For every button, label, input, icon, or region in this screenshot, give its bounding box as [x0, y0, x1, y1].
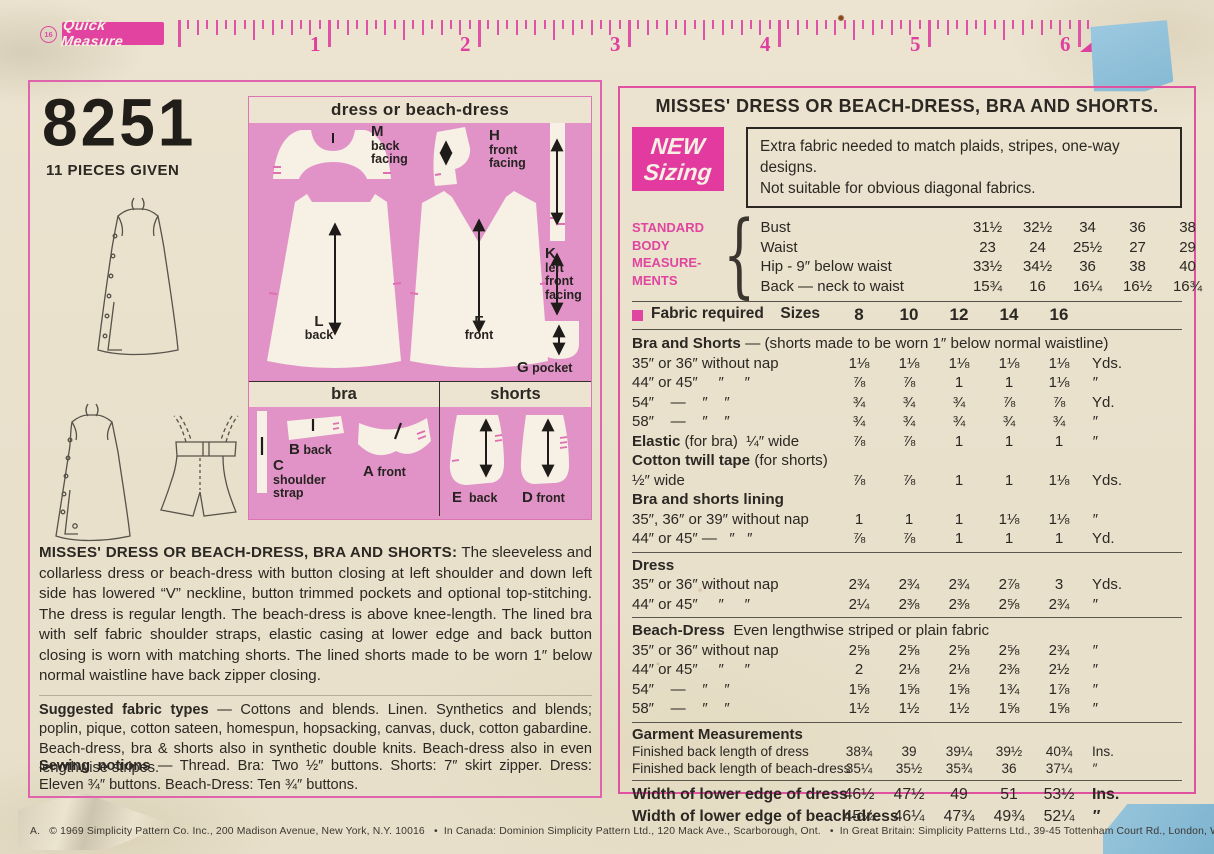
ruler-tick — [441, 20, 443, 35]
size-header-cell: 12 — [934, 305, 984, 325]
value-cell: 15¾ — [963, 277, 1013, 297]
table-row: 44″ or 45″ ″ ″2¼2⅜2⅜2⅝2¾″ — [632, 595, 1182, 615]
table-row: ½″ wide⅞⅞111⅛Yds. — [632, 471, 1182, 491]
value-cell: 52¼ — [1034, 806, 1084, 828]
value-cell: 1 — [884, 510, 934, 530]
value-cell: ¾ — [884, 393, 934, 413]
value-cell: 38 — [1163, 218, 1213, 238]
section-heading-bold: Beach-Dress — [632, 622, 725, 639]
cutting-diagram: dress or beach-dress — [248, 96, 592, 520]
value-cell: 2⅝ — [934, 641, 984, 661]
row-label: 54″ — ″ ″ — [632, 680, 834, 700]
value-cell: 3 — [1034, 575, 1084, 595]
row-label: 35″ or 36″ without nap — [632, 354, 834, 374]
value-cell: 2⅞ — [984, 575, 1034, 595]
ruler-number: 1 — [310, 32, 321, 57]
value-cell: 46½ — [834, 784, 884, 806]
ruler-tick — [731, 20, 733, 29]
unit-cell: ″ — [1084, 760, 1132, 777]
sewing-notions-title: Sewing notions — [39, 758, 150, 774]
ruler-tick — [337, 20, 339, 29]
ruler-tick — [534, 20, 536, 35]
ruler-tick — [919, 20, 921, 29]
row-label: 54″ — ″ ″ — [632, 393, 834, 413]
value-cell: 16½ — [1113, 277, 1163, 297]
value-cell: 1⅝ — [934, 680, 984, 700]
value-cell: ⅞ — [834, 529, 884, 549]
brace-glyph: { — [723, 215, 755, 296]
value-cell: ¾ — [834, 393, 884, 413]
value-cell: ⅞ — [834, 373, 884, 393]
ruler-tick — [853, 20, 855, 40]
table-row: 44″ or 45″ ″ ″22⅛2⅛2⅜2½″ — [632, 660, 1182, 680]
beach-dress-sketch — [56, 404, 130, 541]
ruler-tick — [197, 20, 199, 35]
table-row: Finished back length of beach-dress35¼35… — [632, 760, 1182, 777]
ruler-tick — [1003, 20, 1005, 40]
ruler-tick — [178, 20, 181, 47]
ruler-tick — [797, 20, 799, 35]
value-cell: ⅞ — [984, 393, 1034, 413]
piece-label-g: G pocket — [517, 361, 572, 376]
ruler-tick — [928, 20, 931, 47]
fabric-required-label-cell: Fabric required Sizes — [632, 305, 834, 325]
value-cell: 49¾ — [984, 806, 1034, 828]
ruler-tick — [647, 20, 649, 35]
value-cell: ⅞ — [1034, 393, 1084, 413]
size-header-cell: 16 — [1034, 305, 1084, 325]
ruler-tick — [834, 20, 836, 35]
value-cell: 1 — [1034, 432, 1084, 452]
ruler-tick — [947, 20, 949, 35]
value-cell: 2¾ — [884, 575, 934, 595]
ruler-number: 3 — [610, 32, 621, 57]
row-label: 35″, 36″ or 39″ without nap — [632, 510, 834, 530]
row-label: Waist — [761, 238, 963, 258]
ruler-tick — [994, 20, 996, 29]
left-panel: 8251 11 PIECES GIVEN — [28, 80, 602, 798]
ruler-tick — [553, 20, 555, 40]
ruler-tick — [1087, 20, 1089, 29]
value-cell: 2⅝ — [834, 641, 884, 661]
value-cell: 38¾ — [834, 743, 884, 760]
unit-cell: Ins. — [1084, 743, 1132, 760]
value-cell: 35¾ — [934, 760, 984, 777]
value-cell: ¾ — [934, 393, 984, 413]
sewing-notions: Sewing notions — Thread. Bra: Two ½″ but… — [39, 757, 592, 796]
value-cell: ¾ — [1034, 412, 1084, 432]
value-cell: 39 — [884, 743, 934, 760]
table-row: Elastic (for bra) ¼″ wide⅞⅞111″ — [632, 432, 1182, 452]
ruler-tick — [872, 20, 874, 35]
value-cell: 53½ — [1034, 784, 1084, 806]
ruler-tick — [300, 20, 302, 29]
value-cell: 1 — [834, 510, 884, 530]
value-cell: 40¾ — [1034, 743, 1084, 760]
value-cell: 1⅛ — [1034, 471, 1084, 491]
value-cell: 1⅛ — [984, 510, 1034, 530]
value-cell: 1 — [984, 529, 1034, 549]
value-cell: 1 — [984, 373, 1034, 393]
value-cell: 16 — [1013, 277, 1063, 297]
row-label: 44″ or 45″ ″ ″ — [632, 373, 834, 393]
unit-cell: Yd. — [1084, 393, 1132, 413]
value-cell: 2¾ — [1034, 595, 1084, 615]
ruler-tick — [1078, 20, 1081, 47]
value-cell: 1 — [934, 373, 984, 393]
piece-label-d: D front — [522, 491, 565, 506]
ruler-tick — [619, 20, 621, 29]
row-label: Elastic (for bra) ¼″ wide — [632, 432, 834, 452]
ruler-tick — [694, 20, 696, 29]
value-cell: 2¾ — [934, 575, 984, 595]
value-cell: 1 — [984, 432, 1034, 452]
value-cell: 36 — [1063, 257, 1113, 277]
ruler-tick — [356, 20, 358, 29]
dress-pattern-pieces — [249, 123, 588, 381]
value-cell: 2¾ — [1034, 641, 1084, 661]
dress-pieces-diagram: Mback facing Hfront facing Kleft front f… — [249, 123, 591, 381]
ruler-tick — [684, 20, 686, 35]
ruler-tick — [253, 20, 255, 40]
value-cell: 51 — [984, 784, 1034, 806]
value-cell: 1⅛ — [984, 354, 1034, 374]
ruler-tick — [525, 20, 527, 29]
new-sizing-badge: NEW Sizing — [632, 127, 724, 191]
ruler-tick — [881, 20, 883, 29]
row-label: 58″ — ″ ″ — [632, 699, 834, 719]
body-measurements-label: STANDARDBODYMEASURE-MENTS — [632, 215, 720, 296]
value-cell: 35¼ — [834, 760, 884, 777]
ruler-tick — [206, 20, 208, 29]
ruler-tick — [675, 20, 677, 29]
table-row: Bust31½32½343638Ins. — [761, 218, 1214, 238]
value-cell: 2⅜ — [884, 595, 934, 615]
piece-label-b: B back — [289, 443, 332, 458]
ruler-tick — [666, 20, 668, 35]
ruler-tick — [347, 20, 349, 35]
value-cell: 16¼ — [1063, 277, 1113, 297]
value-cell: 1 — [934, 471, 984, 491]
table-row: 54″ — ″ ″¾¾¾⅞⅞Yd. — [632, 393, 1182, 413]
value-cell: 29 — [1163, 238, 1213, 258]
pattern-envelope-back: 16 Quick Measure 123456 8251 11 PIECES G… — [0, 0, 1214, 854]
section-heading: Garment Measurements — [632, 726, 1182, 743]
table-row: Hip - 9″ below waist33½34½363840″ — [761, 257, 1214, 277]
unit-cell: ″ — [1084, 412, 1132, 432]
row-label: Back — neck to waist — [761, 277, 963, 297]
ruler-tick — [431, 20, 433, 29]
value-cell: 32½ — [1013, 218, 1063, 238]
value-cell: 39½ — [984, 743, 1034, 760]
ruler-tick — [778, 20, 781, 47]
unit-cell: ″ — [1084, 660, 1132, 680]
piece-label-c: Cshoulder strap — [273, 459, 326, 501]
value-cell: 33½ — [963, 257, 1013, 277]
fabric-required-header: Fabric required Sizes 810121416 — [632, 301, 1182, 330]
section-heading-bold: Bra and Shorts — [632, 335, 741, 352]
ruler-tick — [394, 20, 396, 29]
ruler-tick — [366, 20, 368, 35]
value-cell: 34½ — [1013, 257, 1063, 277]
value-cell: 2⅝ — [984, 641, 1034, 661]
ruler-tick — [262, 20, 264, 29]
pattern-number: 8251 — [42, 84, 196, 161]
body-measurements-label-line: BODY — [632, 237, 720, 255]
ruler-ticks: 123456 — [28, 20, 1118, 60]
unit-cell: ″ — [1084, 806, 1132, 828]
ruler-tick — [750, 20, 752, 29]
ruler-tick — [244, 20, 246, 29]
divider-rule — [632, 722, 1182, 723]
unit-cell: Yds. — [1084, 575, 1132, 595]
ruler-tick — [1041, 20, 1043, 35]
value-cell: ¾ — [834, 412, 884, 432]
value-cell: 1⅛ — [1034, 510, 1084, 530]
value-cell: 2⅜ — [984, 660, 1034, 680]
unit-cell: Yd. — [1084, 529, 1132, 549]
value-cell: ⅞ — [884, 471, 934, 491]
section-heading-bold: Dress — [632, 557, 674, 574]
value-cell: 38 — [1113, 257, 1163, 277]
section-heading-bold: Garment Measurements — [632, 726, 803, 743]
diagram-title: dress or beach-dress — [249, 97, 591, 123]
ruler-tick — [844, 20, 846, 29]
value-cell: ⅞ — [884, 373, 934, 393]
ruler-tick — [487, 20, 489, 29]
ruler-tick — [281, 20, 283, 29]
unit-cell: ″ — [1084, 432, 1132, 452]
value-cell: 36 — [1113, 218, 1163, 238]
ruler-tick — [497, 20, 499, 35]
value-cell: 1⅛ — [884, 354, 934, 374]
table-row: 54″ — ″ ″1⅝1⅝1⅝1¾1⅞″ — [632, 680, 1182, 700]
empty-unit-cell — [1084, 305, 1132, 325]
value-cell: 2¼ — [834, 595, 884, 615]
value-cell: 25½ — [1063, 238, 1113, 258]
value-cell: 2⅛ — [884, 660, 934, 680]
ruler-tick — [722, 20, 724, 35]
table-row: 58″ — ″ ″¾¾¾¾¾″ — [632, 412, 1182, 432]
table-row: 44″ or 45″ ″ ″⅞⅞111⅛″ — [632, 373, 1182, 393]
body-measurements-rows: Bust31½32½343638Ins.Waist232425½2729″Hip… — [761, 215, 1214, 296]
ruler-tick — [1050, 20, 1052, 29]
row-label: Hip - 9″ below waist — [761, 257, 963, 277]
ruler-tick — [825, 20, 827, 29]
row-label: Finished back length of beach-dress — [632, 760, 834, 777]
ruler-tick — [450, 20, 452, 29]
dress-back-sketch — [98, 198, 178, 355]
value-cell: 1⅝ — [1034, 699, 1084, 719]
value-cell: 2½ — [1034, 660, 1084, 680]
divider-rule — [632, 617, 1182, 618]
copyright-line: A. © 1969 Simplicity Pattern Co. Inc., 2… — [30, 826, 1100, 837]
value-cell: 37¼ — [1034, 760, 1084, 777]
section-heading-bold: Cotton twill tape — [632, 452, 750, 469]
size-header-cell: 10 — [884, 305, 934, 325]
shorts-pieces-diagram: shorts — [439, 382, 591, 516]
section-heading: Bra and Shorts — (shorts made to be worn… — [632, 334, 1182, 354]
unit-cell: ″ — [1084, 595, 1132, 615]
ruler-tick — [216, 20, 218, 35]
ruler-tick — [984, 20, 986, 35]
value-cell: 2⅝ — [884, 641, 934, 661]
ruler-tick — [422, 20, 424, 35]
ruler-tick — [741, 20, 743, 35]
value-cell: 47¾ — [934, 806, 984, 828]
table-row: Finished back length of dress38¾3939¼39½… — [632, 743, 1182, 760]
ruler-tick — [478, 20, 481, 47]
ruler-tick — [544, 20, 546, 29]
body-measurements-label-line: STANDARD — [632, 219, 720, 237]
piece-label-f: Ffront — [449, 315, 509, 342]
piece-e-shape — [450, 415, 504, 485]
value-cell: 1⅛ — [1034, 354, 1084, 374]
value-cell: ¾ — [934, 412, 984, 432]
table-row: 58″ — ″ ″1½1½1½1⅝1⅝″ — [632, 699, 1182, 719]
unit-cell: ″ — [1084, 699, 1132, 719]
value-cell: 2 — [834, 660, 884, 680]
ruler-tick — [469, 20, 471, 29]
value-cell: ⅞ — [834, 471, 884, 491]
row-label: 58″ — ″ ″ — [632, 412, 834, 432]
ruler-tick — [1031, 20, 1033, 29]
ruler-tick — [516, 20, 518, 35]
shorts-title: shorts — [440, 382, 591, 407]
value-cell: 1⅝ — [984, 699, 1034, 719]
row-label: Width of lower edge of dress — [632, 784, 834, 806]
table-row: 44″ or 45″ — ″ ″⅞⅞111Yd. — [632, 529, 1182, 549]
ruler-number: 2 — [460, 32, 471, 57]
fabric-notice-line2: Not suitable for obvious diagonal fabric… — [760, 178, 1168, 199]
ruler-tick — [384, 20, 386, 35]
ruler-tick — [787, 20, 789, 29]
piece-label-k: Kleft front facing — [545, 247, 582, 302]
style-description-title: MISSES' DRESS OR BEACH-DRESS, BRA AND SH… — [39, 544, 457, 561]
table-row: 35″ or 36″ without nap1⅛1⅛1⅛1⅛1⅛Yds. — [632, 354, 1182, 374]
ruler-tick — [816, 20, 818, 35]
ruler-tick — [1069, 20, 1071, 29]
ruler-tick — [900, 20, 902, 29]
ruler-tick — [966, 20, 968, 35]
value-cell: 1⅛ — [834, 354, 884, 374]
value-cell: 1 — [934, 529, 984, 549]
value-cell: ¾ — [884, 412, 934, 432]
row-label-bold: Width of lower edge of dress — [632, 786, 848, 803]
ruler-tick — [1022, 20, 1024, 35]
row-label: 44″ or 45″ ″ ″ — [632, 660, 834, 680]
ruler-tick — [506, 20, 508, 29]
ruler-tick — [712, 20, 714, 29]
value-cell: ⅞ — [884, 432, 934, 452]
ruler-tick — [234, 20, 236, 35]
value-cell: 40 — [1163, 257, 1213, 277]
ruler-tick — [956, 20, 958, 29]
value-cell: ⅞ — [834, 432, 884, 452]
section-heading: Beach-Dress Even lengthwise striped or p… — [632, 621, 1182, 641]
value-cell: 1⅛ — [1034, 373, 1084, 393]
row-label: Width of lower edge of beach-dress — [632, 806, 834, 828]
value-cell: 36 — [984, 760, 1034, 777]
sizes-label: Sizes — [780, 305, 834, 323]
table-row: Width of lower edge of dress46½47½495153… — [632, 784, 1182, 806]
value-cell: 1¾ — [984, 680, 1034, 700]
style-description: MISSES' DRESS OR BEACH-DRESS, BRA AND SH… — [39, 543, 592, 687]
row-label: 35″ or 36″ without nap — [632, 575, 834, 595]
value-cell: 16¾ — [1163, 277, 1213, 297]
unit-cell: Yds. — [1084, 471, 1132, 491]
row-label: Bust — [761, 218, 963, 238]
ruler-tick — [769, 20, 771, 29]
bra-and-shorts-sketch — [161, 416, 238, 516]
ruler-tick — [703, 20, 705, 40]
value-cell: 31½ — [963, 218, 1013, 238]
piece-label-h: Hfront facing — [489, 129, 526, 171]
body-measurements-label-line: MEASURE- — [632, 254, 720, 272]
section-heading-bold: Bra and shorts lining — [632, 491, 784, 508]
piece-label-a: A front — [363, 465, 406, 480]
piece-d-shape — [521, 415, 569, 484]
pink-square-icon — [632, 310, 643, 321]
section-heading: Bra and shorts lining — [632, 490, 1182, 510]
unit-cell: ″ — [1084, 680, 1132, 700]
table-row: 35″ or 36″ without nap2¾2¾2¾2⅞3Yds. — [632, 575, 1182, 595]
blue-tape-top-right — [1090, 20, 1174, 94]
ruler-tick — [806, 20, 808, 29]
table-row: 35″ or 36″ without nap2⅝2⅝2⅝2⅝2¾″ — [632, 641, 1182, 661]
new-sizing-line1: NEW — [650, 133, 706, 159]
yardage-tables: Bra and Shorts — (shorts made to be worn… — [632, 334, 1182, 828]
value-cell: 1 — [934, 432, 984, 452]
value-cell: 1⅝ — [834, 680, 884, 700]
row-label: 35″ or 36″ without nap — [632, 641, 834, 661]
value-cell: 1 — [984, 471, 1034, 491]
ruler-number: 6 — [1060, 32, 1071, 57]
right-panel: MISSES' DRESS OR BEACH-DRESS, BRA AND SH… — [618, 86, 1196, 794]
body-measurements-label-line: MENTS — [632, 272, 720, 290]
value-cell: 27 — [1113, 238, 1163, 258]
unit-cell: Ins. — [1084, 784, 1132, 806]
row-label: ½″ wide — [632, 471, 834, 491]
value-cell: 1⅛ — [934, 354, 984, 374]
section-heading: Cotton twill tape (for shorts) — [632, 451, 1182, 471]
ruler-tick — [272, 20, 274, 35]
ruler-tick — [1012, 20, 1014, 29]
value-cell: 1½ — [884, 699, 934, 719]
value-cell: 1 — [1034, 529, 1084, 549]
ruler-tick — [937, 20, 939, 29]
table-row: Width of lower edge of beach-dress45¼46¼… — [632, 806, 1182, 828]
value-cell: 2⅝ — [984, 595, 1034, 615]
unit-cell: ″ — [1084, 510, 1132, 530]
value-cell: 35½ — [884, 760, 934, 777]
ruler-tick — [628, 20, 631, 47]
table-row: 35″, 36″ or 39″ without nap1111⅛1⅛″ — [632, 510, 1182, 530]
ruler-number: 4 — [760, 32, 771, 57]
unit-cell: ″ — [1084, 373, 1132, 393]
ruler-tick — [319, 20, 321, 29]
row-label: 44″ or 45″ — ″ ″ — [632, 529, 834, 549]
ruler-tick — [862, 20, 864, 29]
row-label: Finished back length of dress — [632, 743, 834, 760]
divider-rule — [632, 552, 1182, 553]
piece-label-m: Mback facing — [371, 125, 408, 167]
ruler-tick — [403, 20, 405, 40]
ruler-number: 5 — [910, 32, 921, 57]
value-cell: ¾ — [984, 412, 1034, 432]
ruler-tick — [187, 20, 189, 29]
ruler-tick — [591, 20, 593, 35]
